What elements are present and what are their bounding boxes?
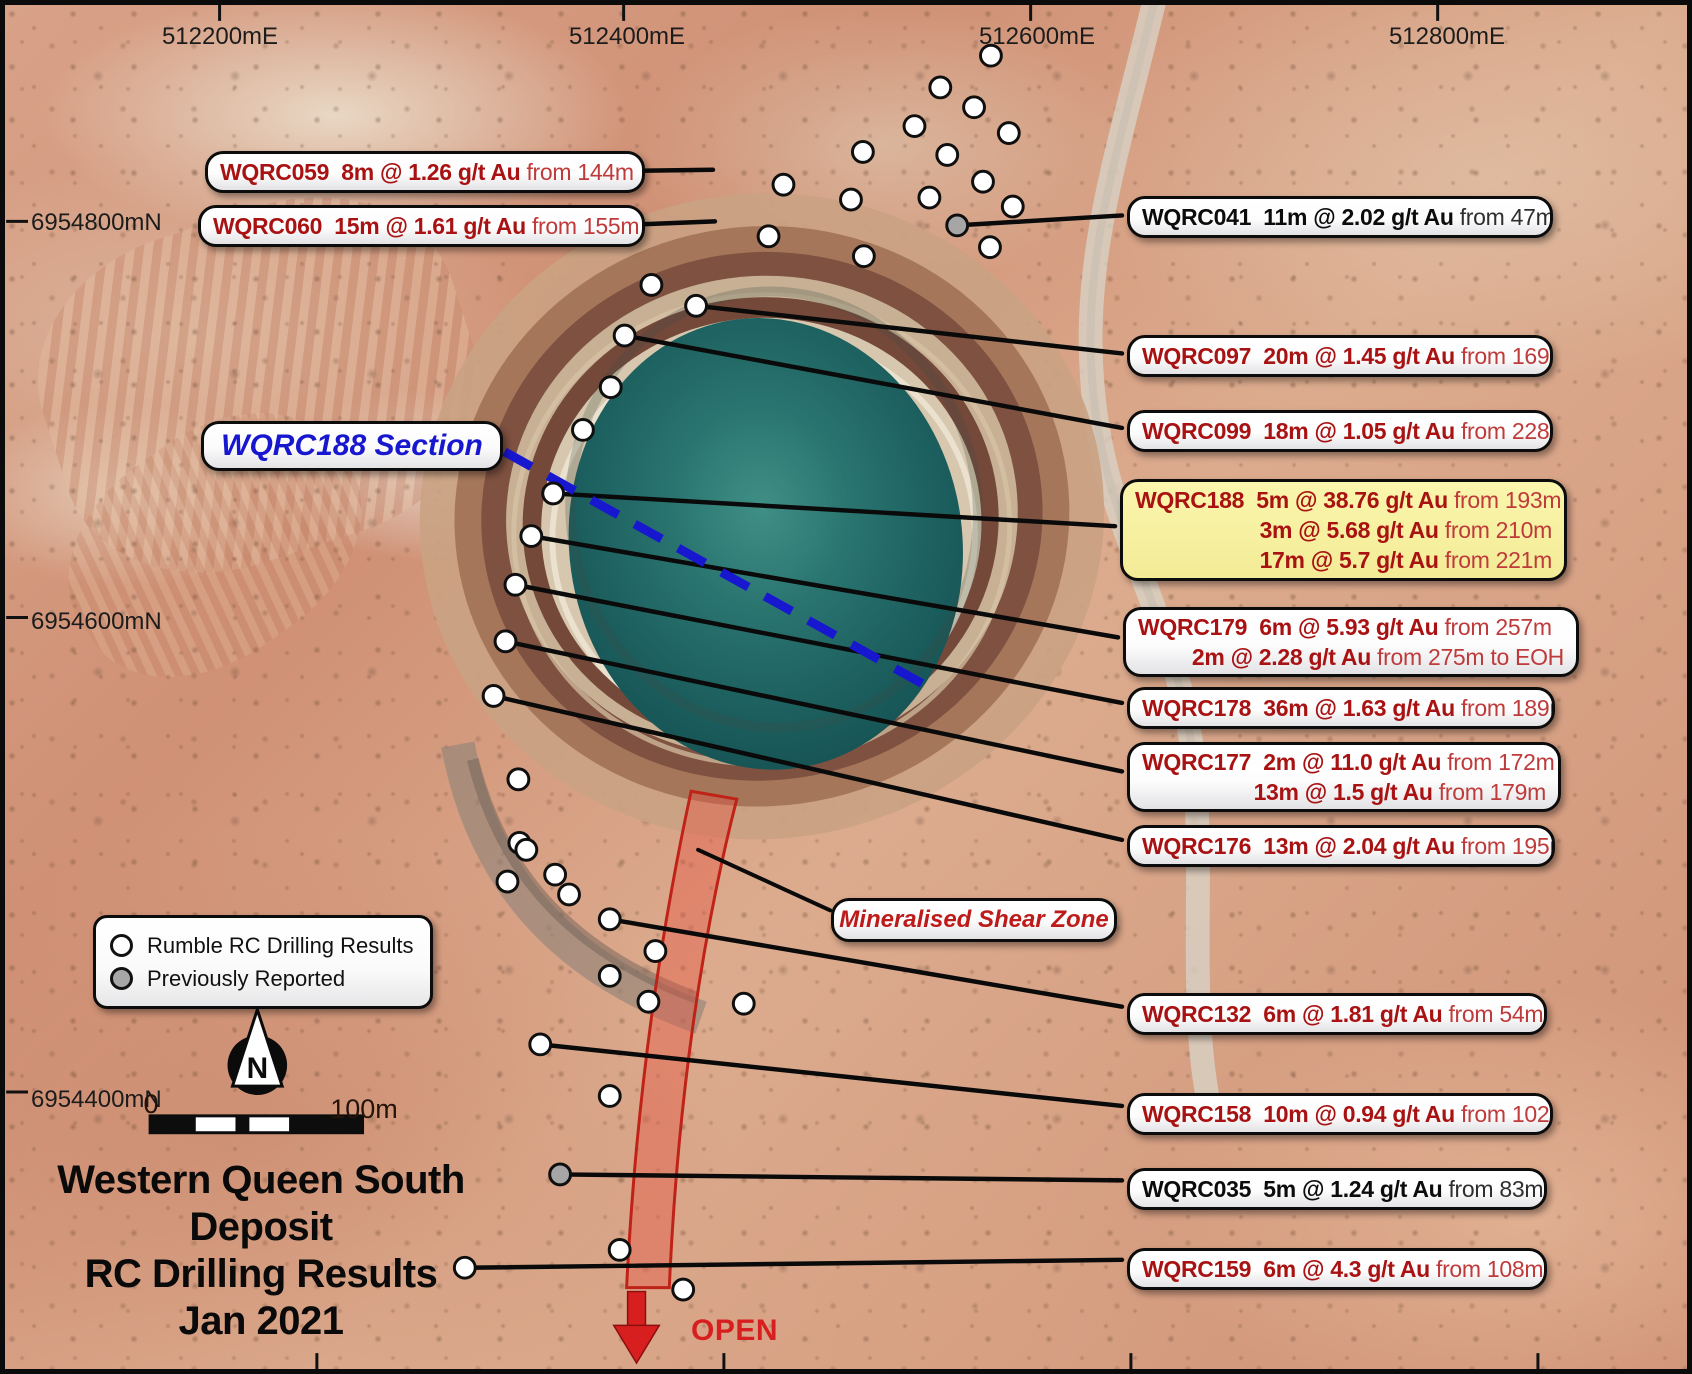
grid-label-easting: 512200mE: [145, 23, 295, 51]
drillhole-marker: [530, 1034, 551, 1055]
callout-row: WQRC097 20m @ 1.45 g/t Au from 169m: [1142, 341, 1538, 371]
leader-line-WQRC059: [640, 170, 713, 171]
drillhole-marker: [904, 116, 925, 137]
drillhole-marker: [614, 325, 635, 346]
drillhole-marker: [733, 993, 754, 1014]
drillhole-marker: [930, 77, 951, 98]
drillhole-marker: [559, 884, 580, 905]
grid-label-easting: 512400mE: [552, 23, 702, 51]
drillhole-marker: [853, 246, 874, 267]
drillhole-marker: [495, 631, 516, 652]
drillhole-marker: [998, 123, 1019, 144]
drillhole-marker: [641, 275, 662, 296]
drillhole-marker: [609, 1239, 630, 1260]
drillhole-marker: [573, 419, 594, 440]
callout-row: WQRC035 5m @ 1.24 g/t Au from 83m: [1142, 1174, 1532, 1204]
leader-line-WQRC159: [465, 1260, 1122, 1268]
drillhole-marker: [645, 941, 666, 962]
drillhole-marker: [545, 864, 566, 885]
drillhole-marker: [686, 295, 707, 316]
drillhole-marker-previous: [550, 1164, 571, 1185]
leader-line-shear-zone: [698, 850, 830, 911]
callout-row: WQRC178 36m @ 1.63 g/t Au from 189m: [1142, 693, 1540, 723]
title-line-1: Western Queen South: [31, 1157, 491, 1204]
leader-line-WQRC060: [640, 221, 715, 224]
callout-row: 17m @ 5.7 g/t Au from 221m: [1135, 545, 1552, 575]
leader-line-WQRC099: [625, 336, 1122, 428]
callout-row: WQRC099 18m @ 1.05 g/t Au from 228m: [1142, 416, 1538, 446]
grid-label-northing: 6954800mN: [31, 209, 162, 237]
drillhole-marker: [937, 144, 958, 165]
legend: Rumble RC Drilling Results Previously Re…: [93, 915, 433, 1009]
drillhole-marker: [638, 991, 659, 1012]
drillhole-marker: [852, 141, 873, 162]
callout-WQRC097: WQRC097 20m @ 1.45 g/t Au from 169m: [1127, 335, 1553, 377]
callout-row: 3m @ 5.68 g/t Au from 210m: [1135, 515, 1552, 545]
leader-line-WQRC097: [696, 306, 1122, 354]
callout-row: WQRC159 6m @ 4.3 g/t Au from 108m: [1142, 1254, 1532, 1284]
callout-WQRC176: WQRC176 13m @ 2.04 g/t Au from 195m: [1127, 825, 1555, 867]
callout-row: WQRC060 15m @ 1.61 g/t Au from 155m: [213, 211, 630, 241]
drillhole-marker: [964, 97, 985, 118]
callout-row: WQRC176 13m @ 2.04 g/t Au from 195m: [1142, 831, 1540, 861]
drillhole-marker: [543, 483, 564, 504]
legend-label: Rumble RC Drilling Results: [147, 933, 414, 959]
drillhole-marker: [973, 171, 994, 192]
callout-row: 2m @ 2.28 g/t Au from 275m to EOH: [1138, 642, 1564, 672]
grid-label-easting: 512800mE: [1372, 23, 1522, 51]
drilling-results-map: N 512200mE512400mE512600mE512800mE695480…: [0, 0, 1692, 1374]
leader-line-WQRC177: [505, 641, 1121, 771]
callout-WQRC188: WQRC188 5m @ 38.76 g/t Au from 193m3m @ …: [1120, 479, 1567, 581]
callout-row: WQRC041 11m @ 2.02 g/t Au from 47m: [1142, 202, 1538, 232]
legend-label: Previously Reported: [147, 966, 345, 992]
drillhole-marker: [841, 189, 862, 210]
callout-row: WQRC059 8m @ 1.26 g/t Au from 144m: [220, 157, 630, 187]
shear-zone-label: Mineralised Shear Zone: [831, 898, 1117, 942]
drillhole-marker: [1002, 196, 1023, 217]
callout-WQRC177: WQRC177 2m @ 11.0 g/t Au from 172m13m @ …: [1127, 742, 1561, 812]
drillhole-marker: [919, 187, 940, 208]
drillhole-marker: [483, 686, 504, 707]
callout-WQRC179: WQRC179 6m @ 5.93 g/t Au from 257m2m @ 2…: [1123, 607, 1579, 677]
drillhole-marker: [673, 1279, 694, 1300]
title-line-4: Jan 2021: [31, 1298, 491, 1345]
gray-drillhole-marker-icon: [110, 967, 133, 990]
callout-row: WQRC179 6m @ 5.93 g/t Au from 257m: [1138, 612, 1564, 642]
callout-WQRC158: WQRC158 10m @ 0.94 g/t Au from 102m: [1127, 1093, 1553, 1135]
legend-item-previous: Previously Reported: [110, 966, 416, 992]
callout-row: 13m @ 1.5 g/t Au from 179m: [1142, 777, 1546, 807]
scale-100m-label: 100m: [322, 1094, 406, 1125]
section-line-label: WQRC188 Section: [201, 421, 503, 471]
leader-line-WQRC035: [560, 1174, 1122, 1180]
white-drillhole-marker-icon: [110, 934, 133, 957]
drillhole-marker: [508, 769, 529, 790]
callout-WQRC059: WQRC059 8m @ 1.26 g/t Au from 144m: [205, 151, 645, 193]
drillhole-marker: [758, 226, 779, 247]
grid-label-easting: 512600mE: [962, 23, 1112, 51]
callout-WQRC035: WQRC035 5m @ 1.24 g/t Au from 83m: [1127, 1168, 1547, 1210]
drillhole-marker: [599, 965, 620, 986]
grid-label-northing: 6954600mN: [31, 608, 162, 636]
drillhole-marker: [599, 1086, 620, 1107]
drillhole-marker: [773, 174, 794, 195]
drillhole-marker: [505, 574, 526, 595]
drillhole-marker: [980, 237, 1001, 258]
callout-WQRC060: WQRC060 15m @ 1.61 g/t Au from 155m: [198, 205, 645, 247]
drillhole-marker: [497, 871, 518, 892]
title-line-2: Deposit: [31, 1204, 491, 1251]
leader-line-WQRC176: [494, 696, 1122, 840]
map-title: Western Queen South Deposit RC Drilling …: [31, 1157, 491, 1345]
callout-WQRC159: WQRC159 6m @ 4.3 g/t Au from 108m: [1127, 1248, 1547, 1290]
scale-zero-label: 0: [131, 1089, 171, 1120]
legend-item-rumble: Rumble RC Drilling Results: [110, 933, 416, 959]
leader-line-WQRC158: [540, 1044, 1122, 1106]
leader-line-WQRC041: [957, 215, 1122, 225]
callout-row: WQRC188 5m @ 38.76 g/t Au from 193m: [1135, 485, 1552, 515]
drillhole-marker: [516, 839, 537, 860]
leader-line-WQRC179: [531, 536, 1118, 637]
callout-WQRC041: WQRC041 11m @ 2.02 g/t Au from 47m: [1127, 196, 1553, 238]
drillhole-marker: [599, 909, 620, 930]
open-label: OPEN: [691, 1314, 778, 1348]
callout-row: WQRC132 6m @ 1.81 g/t Au from 54m: [1142, 999, 1532, 1029]
callout-WQRC132: WQRC132 6m @ 1.81 g/t Au from 54m: [1127, 993, 1547, 1035]
drillhole-marker: [600, 377, 621, 398]
callout-row: WQRC177 2m @ 11.0 g/t Au from 172m: [1142, 747, 1546, 777]
drillhole-marker-previous: [947, 215, 968, 236]
callout-row: WQRC158 10m @ 0.94 g/t Au from 102m: [1142, 1099, 1538, 1129]
callout-WQRC099: WQRC099 18m @ 1.05 g/t Au from 228m: [1127, 410, 1553, 452]
title-line-3: RC Drilling Results: [31, 1251, 491, 1298]
drillhole-marker: [521, 526, 542, 547]
leader-line-WQRC178: [515, 585, 1122, 703]
callout-WQRC178: WQRC178 36m @ 1.63 g/t Au from 189m: [1127, 687, 1555, 729]
